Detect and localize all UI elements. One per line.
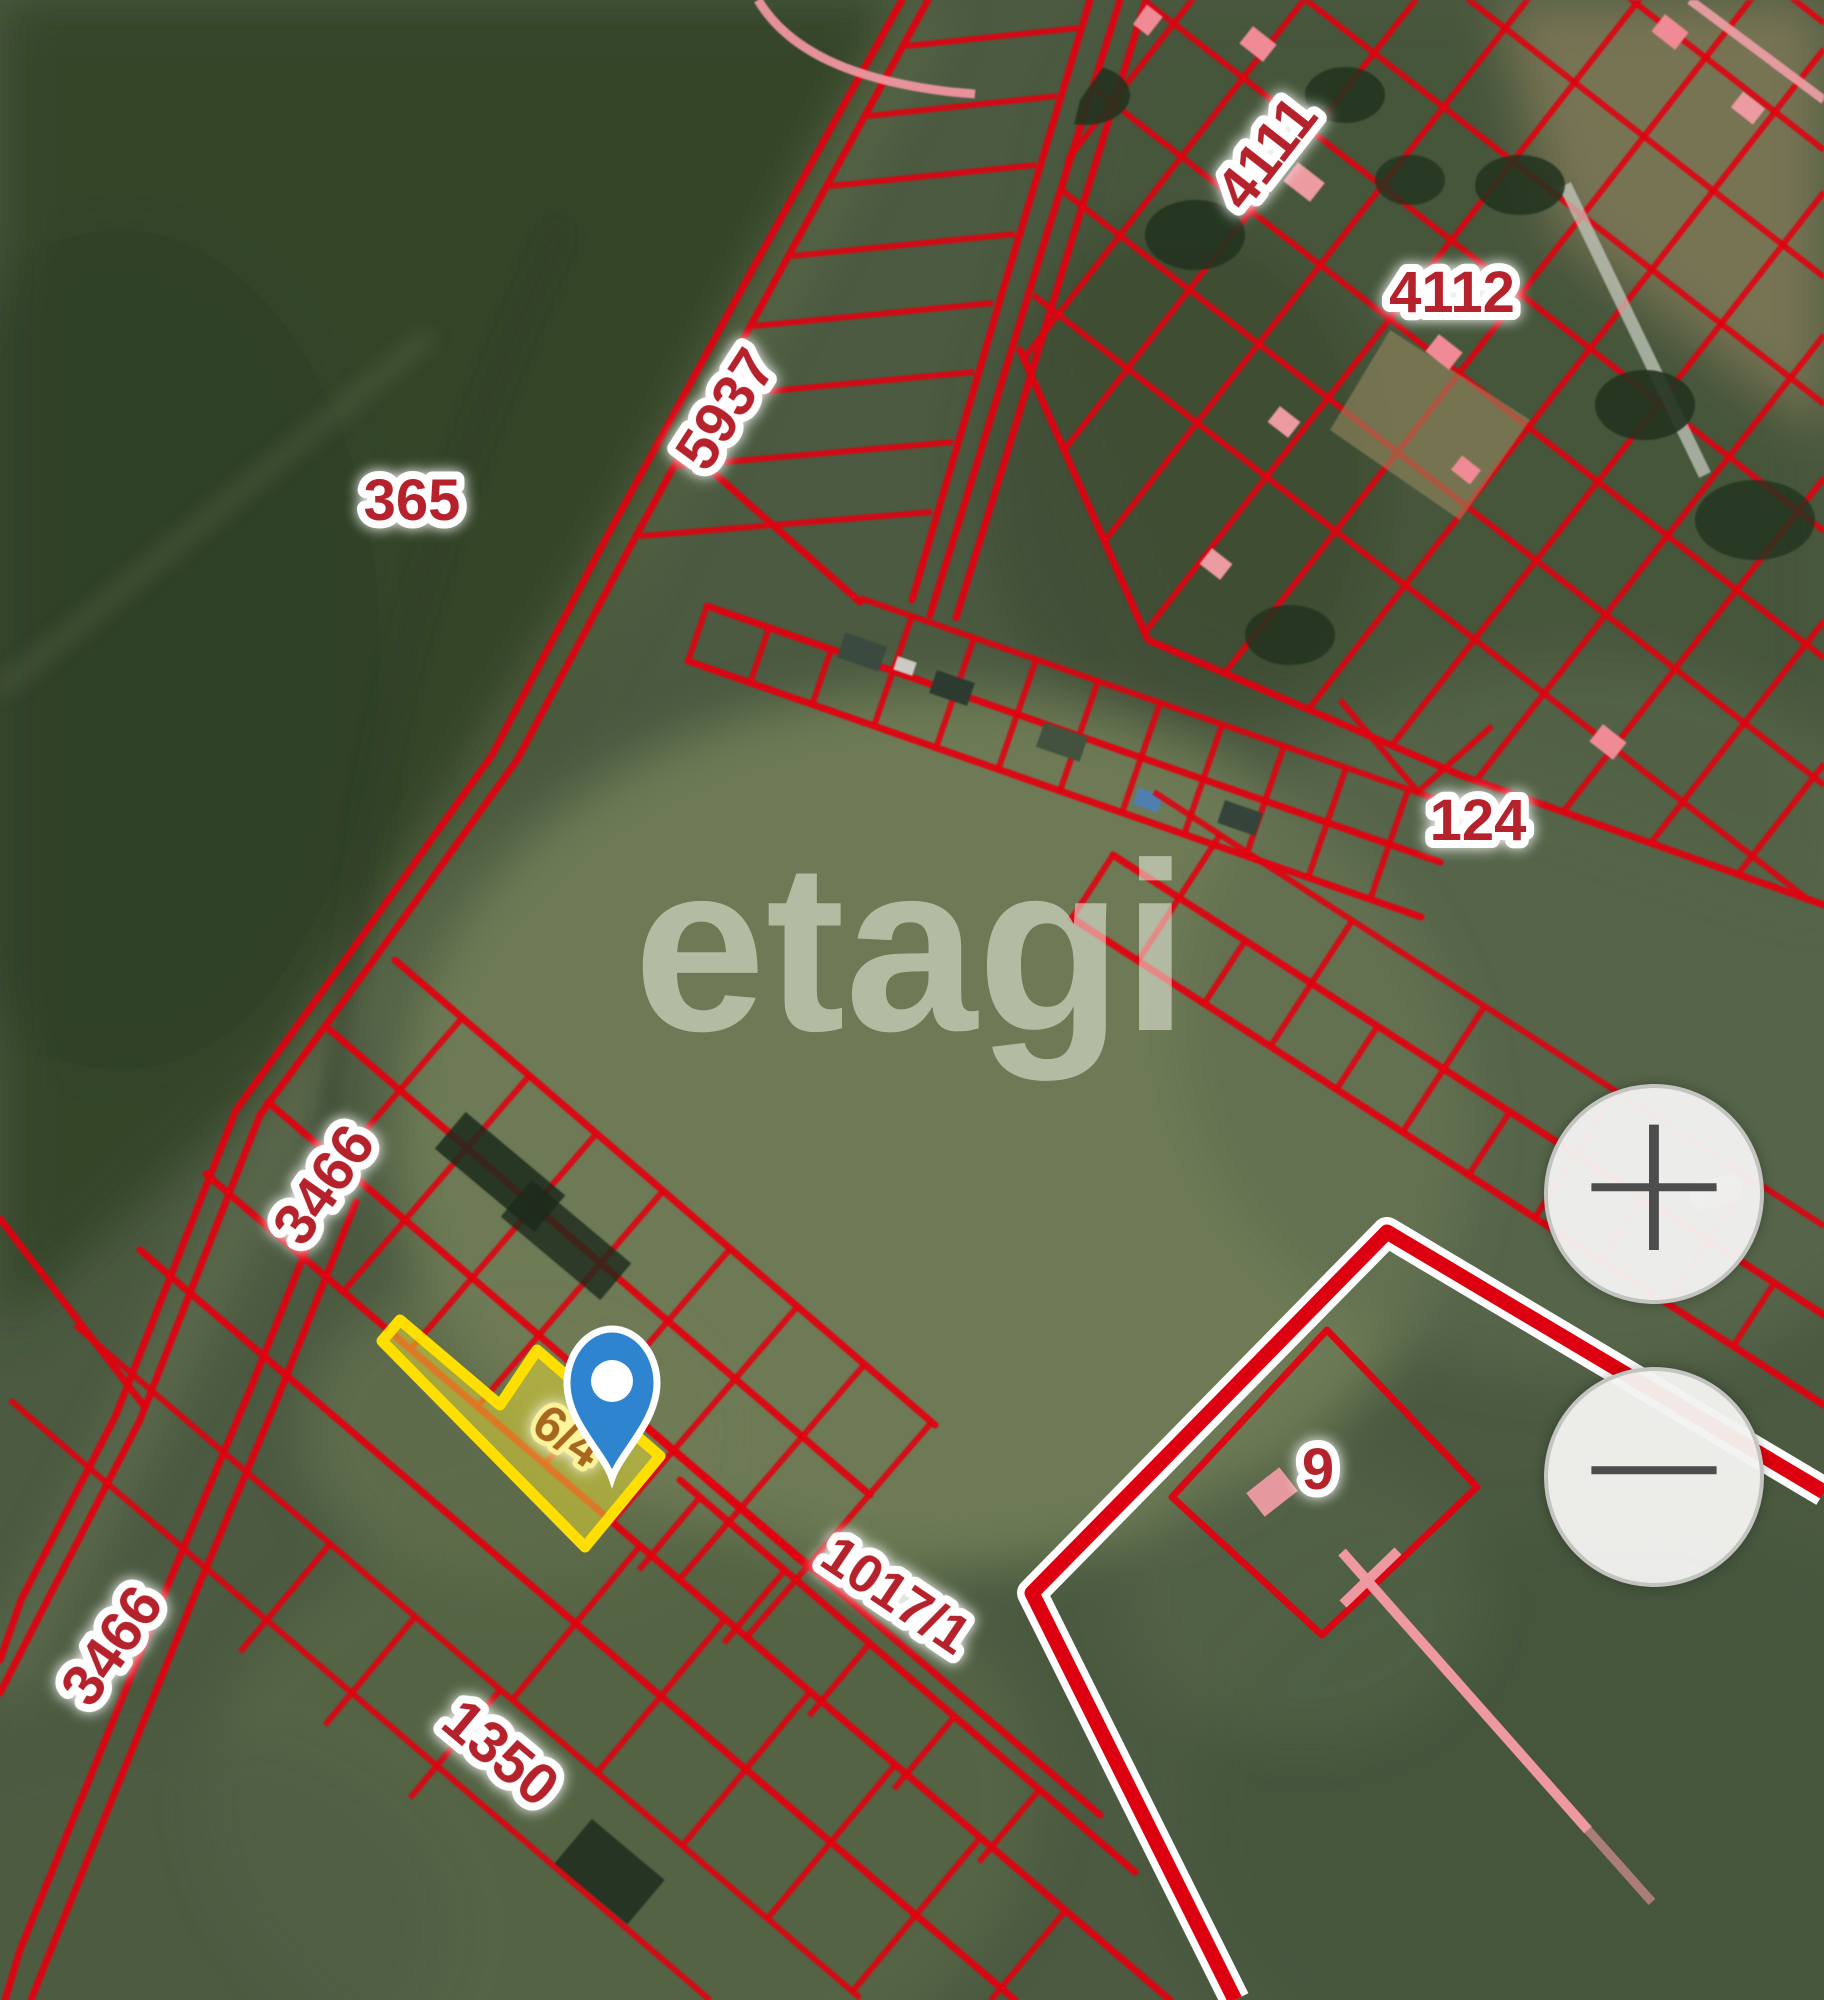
parcel-number-label: 365 — [364, 468, 461, 533]
parcel-number-label: 4112 — [1389, 260, 1515, 325]
map-screen: etagi 4111 4112 5937 365 124 3466 3466 1… — [0, 0, 1824, 2000]
cadastral-map[interactable]: etagi 4111 4112 5937 365 124 3466 3466 1… — [0, 0, 1824, 2000]
zoom-out-button[interactable]: − — [1544, 1367, 1764, 1587]
parcel-number-label: 9 — [1302, 1437, 1334, 1502]
parcel-number-label: 124 — [1430, 788, 1527, 853]
watermark: etagi — [634, 813, 1189, 1081]
plus-icon: + — [1570, 1082, 1738, 1282]
minus-icon: − — [1570, 1365, 1738, 1565]
zoom-in-button[interactable]: + — [1544, 1084, 1764, 1304]
